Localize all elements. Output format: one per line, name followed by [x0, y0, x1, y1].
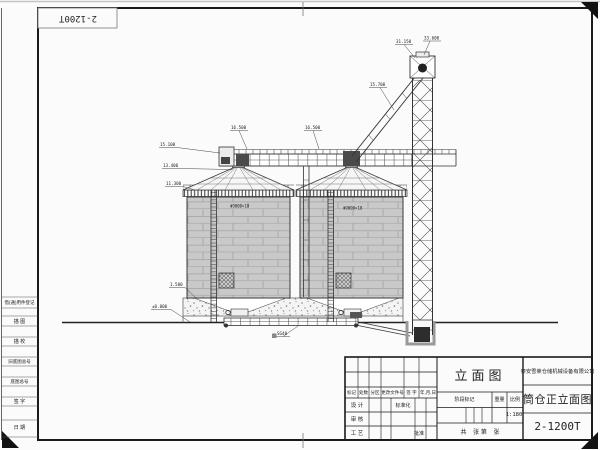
elevation-mark: 16.500: [305, 125, 321, 130]
role-design: 设 计: [345, 398, 369, 412]
elevation-mark: 13.400: [163, 163, 179, 168]
stage-mark-label: 阶段标记: [437, 392, 492, 407]
margin-label-signature: 签 字: [1, 397, 38, 406]
elevation-mark: 11.300: [166, 181, 182, 186]
ladder-platform-right: [336, 273, 351, 288]
margin-column: [2, 8, 39, 440]
elevator-tower: [410, 52, 435, 335]
silo-left: [187, 197, 290, 298]
scale-label: 比例: [507, 392, 523, 407]
margin-label-trace-check: 描 校: [1, 337, 38, 346]
view-label: 立面图: [437, 357, 523, 392]
elevation-mark: 15.100: [160, 142, 176, 147]
rev-header-date: 年,月,日: [419, 387, 437, 398]
conveyor-motor: [350, 312, 362, 318]
fold-mark-top-right: [581, 2, 598, 19]
head-pulley: [418, 64, 427, 73]
margin-label-reuse-record: 借(通)用件登记: [1, 297, 38, 308]
tripper-left: [236, 154, 249, 167]
silo-model-label: Φ9000×10: [343, 206, 363, 211]
sheet-code-box: 2-1200T: [38, 8, 117, 28]
elevation-mark: 15.700: [370, 82, 386, 87]
elevation-mark: ±0.000: [152, 304, 168, 309]
role-approve: 批准: [404, 426, 434, 440]
weight-label: 重量: [492, 392, 507, 407]
drawing-sheet: 33.600 31.150 15.700 16.500 16.500 15.10…: [0, 0, 600, 450]
margin-label-old-original-no: 旧底图总号: [1, 357, 38, 366]
drawing-title: 筒仓正立面图: [523, 385, 592, 413]
role-check: 审 核: [345, 412, 369, 426]
equipment-tag: SG40: [277, 331, 288, 336]
rev-header-zone: 分区: [369, 387, 381, 398]
rev-header-mark: 标记: [345, 387, 358, 398]
rev-header-count: 处数: [358, 387, 369, 398]
silo-model-label: Φ9000×10: [230, 204, 250, 209]
company-name: 泰安雪莱仓储机械设备有限公司: [521, 367, 595, 374]
sheet-count: 共 张 第 张: [437, 423, 523, 440]
elevator-boot: [414, 327, 430, 342]
ladder-platform-left: [219, 273, 234, 288]
elevation-mark: 1.500: [170, 282, 183, 287]
elevator-head: [410, 52, 435, 78]
elevation-mark: 31.150: [396, 39, 412, 44]
incline-junction: [343, 151, 360, 166]
margin-label-original-no: 底图总号: [1, 377, 38, 386]
rev-header-file-no: 更改文件号: [381, 387, 404, 398]
elevation-mark: 33.600: [424, 36, 440, 41]
role-process: 工 艺: [345, 426, 369, 440]
margin-label-trace: 描 图: [1, 316, 38, 326]
role-standard: 标准化: [388, 398, 418, 412]
margin-label-date: 日 期: [1, 420, 38, 434]
silo-right: [300, 197, 403, 298]
rev-header-sign: 签 字: [404, 387, 419, 398]
sheet-code: 2-1200T: [59, 13, 97, 23]
elevation-mark: 16.500: [231, 125, 247, 130]
scale-value: 1:180: [505, 407, 523, 423]
drawing-code: 2-1200T: [523, 413, 592, 440]
company-cell: 泰安雪莱仓储机械设备有限公司: [523, 357, 592, 385]
